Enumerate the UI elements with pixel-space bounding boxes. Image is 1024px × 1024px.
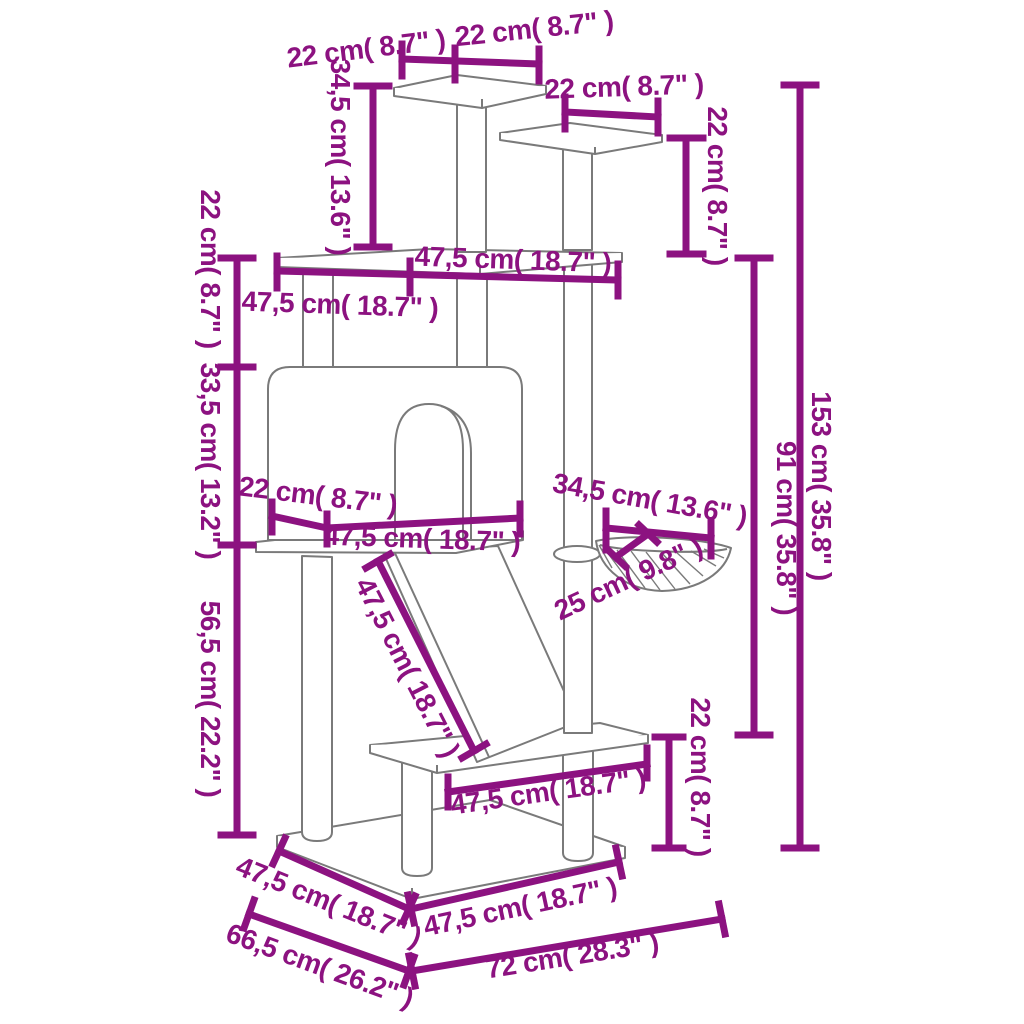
dim-label-house-height-33-5: 33,5 cm( 13.2" )	[195, 363, 226, 560]
dim-label-house-to-base-height-56-5: 56,5 cm( 22.2" )	[195, 601, 226, 798]
dim-label-main-platform-depth-47-5: 47,5 cm( 18.7" )	[241, 286, 439, 324]
dim-label-second-platform-width-22: 22 cm( 8.7" )	[544, 68, 704, 105]
top-platform-edge	[394, 86, 546, 108]
mid-post	[457, 265, 487, 367]
dim-label-total-height-153: 153 cm( 35.8" )	[806, 391, 837, 580]
dim-label-lower-platform-height-22: 22 cm( 8.7" )	[685, 697, 716, 856]
second-platform-edge	[500, 133, 662, 154]
dim-label-top-platform-width-22: 22 cm( 8.7" )	[453, 5, 615, 52]
diagram-canvas: 22 cm( 8.7" )22 cm( 8.7" )22 cm( 8.7" )2…	[0, 0, 1024, 1024]
dim-line	[402, 59, 539, 64]
dimension-house-to-base-height-56-5: 56,5 cm( 22.2" )	[195, 601, 226, 798]
tall-post-upper	[563, 149, 592, 250]
basket-ring	[554, 546, 600, 562]
dim-label-top-post-height-34-5: 34,5 cm( 13.6" )	[325, 59, 356, 256]
left-tall-post	[302, 556, 332, 841]
dimension-lower-platform-height-22: 22 cm( 8.7" )	[655, 697, 716, 856]
lower-left-leg	[402, 757, 432, 876]
dim-label-base-width-72: 72 cm( 28.3" )	[484, 927, 661, 985]
dimension-main-platform-depth-47-5: 47,5 cm( 18.7" )	[241, 286, 439, 324]
dimension-second-platform-height-22: 22 cm( 8.7" )	[670, 106, 733, 265]
dimension-top-platform-width-22: 22 cm( 8.7" )	[453, 5, 615, 52]
dim-label-top-platform-depth-22: 22 cm( 8.7" )	[285, 23, 447, 73]
dim-label-second-platform-height-22: 22 cm( 8.7" )	[702, 106, 733, 265]
dim-line	[719, 904, 725, 934]
top-post	[457, 99, 486, 252]
dim-label-lower-platform-width-47-5: 47,5 cm( 18.7" )	[449, 762, 648, 820]
dimension-top-post-height-34-5: 34,5 cm( 13.6" )	[325, 59, 389, 256]
dimension-second-platform-width-22: 22 cm( 8.7" )	[544, 68, 704, 133]
dimension-house-height-33-5: 33,5 cm( 13.2" )	[195, 363, 226, 560]
dim-line	[565, 112, 658, 117]
dim-label-platform-to-house-height-22: 22 cm( 8.7" )	[195, 189, 226, 348]
dimension-upper-section-height-91: 91 cm( 35.8" )	[738, 258, 802, 735]
